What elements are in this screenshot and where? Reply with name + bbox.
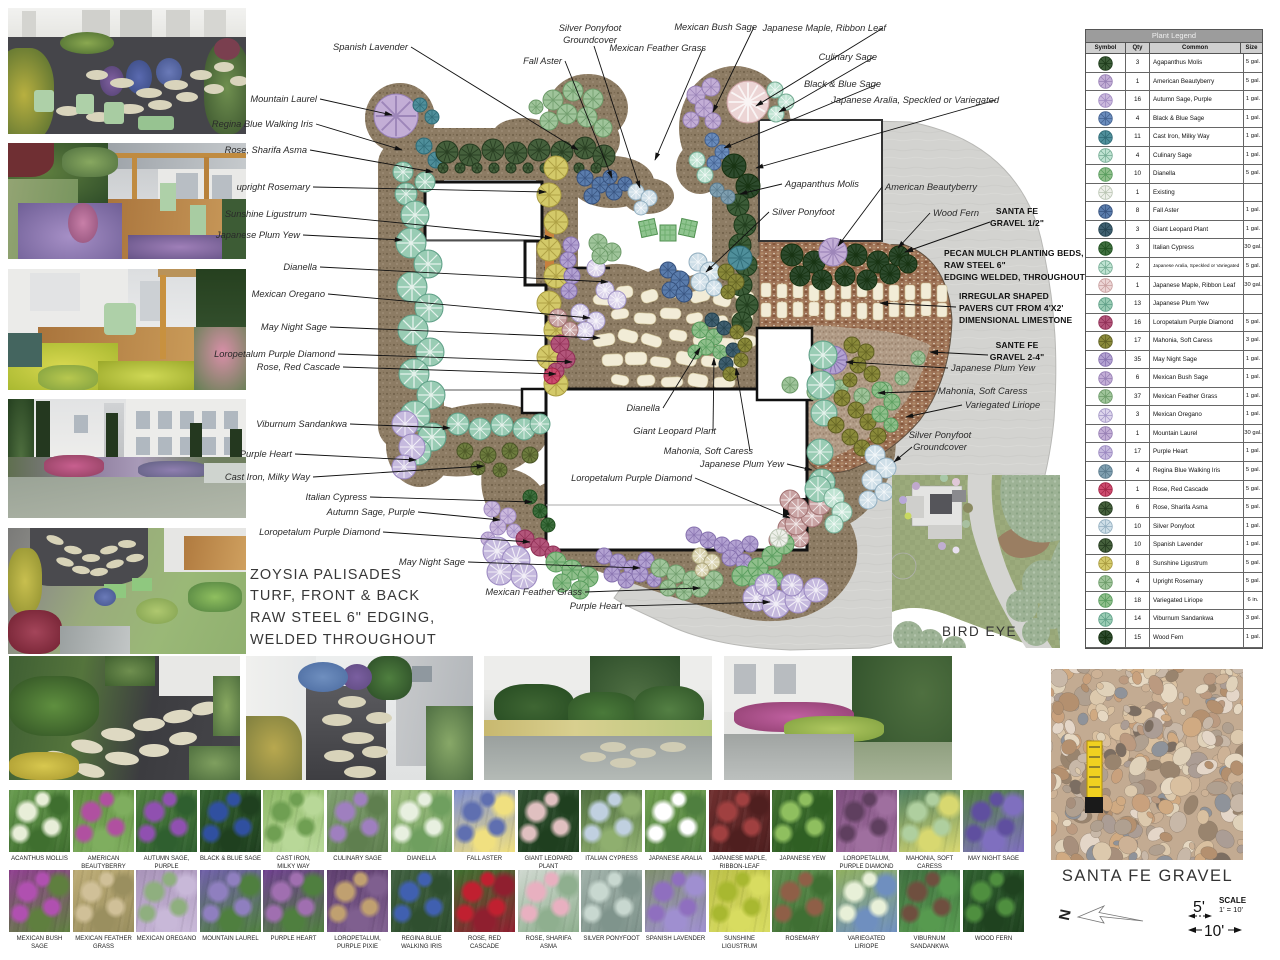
svg-text:Dianella: Dianella [283, 262, 317, 272]
svg-text:SANTA FE: SANTA FE [996, 206, 1039, 216]
svg-text:Japanese Plum Yew: Japanese Plum Yew [215, 230, 301, 240]
svg-text:Japanese Plum Yew: Japanese Plum Yew [699, 459, 785, 469]
svg-text:Black & Blue Sage: Black & Blue Sage [804, 79, 881, 89]
svg-text:Silver Ponyfoot: Silver Ponyfoot [909, 430, 972, 440]
svg-text:Wood Fern: Wood Fern [933, 208, 979, 218]
svg-text:PAVERS CUT FROM 4'X2': PAVERS CUT FROM 4'X2' [959, 303, 1064, 313]
svg-text:Groundcover: Groundcover [913, 442, 968, 452]
svg-text:Mexican Bush Sage: Mexican Bush Sage [674, 22, 757, 32]
svg-text:May Night Sage: May Night Sage [399, 557, 465, 567]
svg-text:American Beautyberry: American Beautyberry [884, 182, 978, 192]
svg-text:Silver Ponyfoot: Silver Ponyfoot [772, 207, 835, 217]
svg-text:Mexican Feather Grass: Mexican Feather Grass [485, 587, 582, 597]
svg-text:Italian Cypress: Italian Cypress [306, 492, 368, 502]
svg-text:5': 5' [1193, 899, 1205, 916]
svg-text:Japanese Maple, Ribbon Leaf: Japanese Maple, Ribbon Leaf [761, 23, 887, 33]
svg-text:Mountain Laurel: Mountain Laurel [250, 94, 318, 104]
svg-text:Japanese Plum Yew: Japanese Plum Yew [950, 363, 1036, 373]
svg-text:TURF, FRONT & BACK: TURF, FRONT & BACK [250, 588, 420, 604]
svg-text:ZOYSIA PALISADES: ZOYSIA PALISADES [250, 567, 402, 583]
svg-text:N: N [1056, 908, 1075, 922]
svg-text:Autumn Sage, Purple: Autumn Sage, Purple [326, 507, 415, 517]
svg-text:Agapanthus Molis: Agapanthus Molis [784, 179, 859, 189]
svg-text:GRAVEL 1/2": GRAVEL 1/2" [990, 218, 1044, 228]
svg-text:Cast Iron, Milky Way: Cast Iron, Milky Way [225, 472, 311, 482]
svg-text:Purple Heart: Purple Heart [240, 449, 293, 459]
svg-text:Fall Aster: Fall Aster [523, 56, 563, 66]
svg-text:Giant Leopard Plant: Giant Leopard Plant [633, 426, 716, 436]
svg-text:upright Rosemary: upright Rosemary [237, 182, 312, 192]
svg-text:1' = 10': 1' = 10' [1219, 905, 1243, 914]
svg-text:SCALE: SCALE [1219, 896, 1247, 905]
svg-text:EDGING WELDED, THROUGHOUT: EDGING WELDED, THROUGHOUT [944, 272, 1086, 282]
svg-text:Spanish Lavender: Spanish Lavender [333, 42, 409, 52]
svg-text:Loropetalum Purple Diamond: Loropetalum Purple Diamond [214, 349, 336, 359]
svg-text:Dianella: Dianella [626, 403, 660, 413]
svg-text:Silver Ponyfoot: Silver Ponyfoot [559, 23, 622, 33]
svg-text:RAW STEEL 6" EDGING,: RAW STEEL 6" EDGING, [250, 610, 435, 626]
svg-text:BIRD EYE: BIRD EYE [942, 624, 1017, 639]
svg-text:Mahonia, Soft Caress: Mahonia, Soft Caress [938, 386, 1028, 396]
svg-text:May Night Sage: May Night Sage [261, 322, 327, 332]
svg-text:Variegated Liriope: Variegated Liriope [965, 400, 1040, 410]
svg-text:SANTE FE: SANTE FE [996, 340, 1039, 350]
svg-text:Rose, Sharifa Asma: Rose, Sharifa Asma [225, 145, 307, 155]
svg-text:Regina Blue Walking Iris: Regina Blue Walking Iris [212, 119, 313, 129]
svg-text:PECAN MULCH PLANTING BEDS,: PECAN MULCH PLANTING BEDS, [944, 248, 1084, 258]
svg-text:Mexican Oregano: Mexican Oregano [252, 289, 325, 299]
svg-text:Mahonia, Soft Caress: Mahonia, Soft Caress [664, 446, 754, 456]
svg-text:Japanese Aralia, Speckled or V: Japanese Aralia, Speckled or Variegated [830, 95, 1000, 105]
svg-text:Mexican Feather Grass: Mexican Feather Grass [609, 43, 706, 53]
svg-text:IRREGULAR SHAPED: IRREGULAR SHAPED [959, 291, 1049, 301]
svg-text:Rose, Red Cascade: Rose, Red Cascade [257, 362, 340, 372]
svg-text:Culinary Sage: Culinary Sage [819, 52, 877, 62]
svg-text:Viburnum Sandankwa: Viburnum Sandankwa [256, 419, 347, 429]
svg-text:10': 10' [1204, 923, 1224, 940]
svg-text:DIMENSIONAL LIMESTONE: DIMENSIONAL LIMESTONE [959, 315, 1072, 325]
svg-text:Loropetalum Purple Diamond: Loropetalum Purple Diamond [571, 473, 693, 483]
svg-text:Purple Heart: Purple Heart [570, 601, 623, 611]
svg-text:RAW STEEL 6": RAW STEEL 6" [944, 260, 1006, 270]
svg-text:GRAVEL 2-4": GRAVEL 2-4" [990, 352, 1044, 362]
svg-text:WELDED THROUGHOUT: WELDED THROUGHOUT [250, 632, 437, 648]
svg-text:Sunshine Ligustrum: Sunshine Ligustrum [225, 209, 307, 219]
svg-text:Loropetalum Purple Diamond: Loropetalum Purple Diamond [259, 527, 381, 537]
